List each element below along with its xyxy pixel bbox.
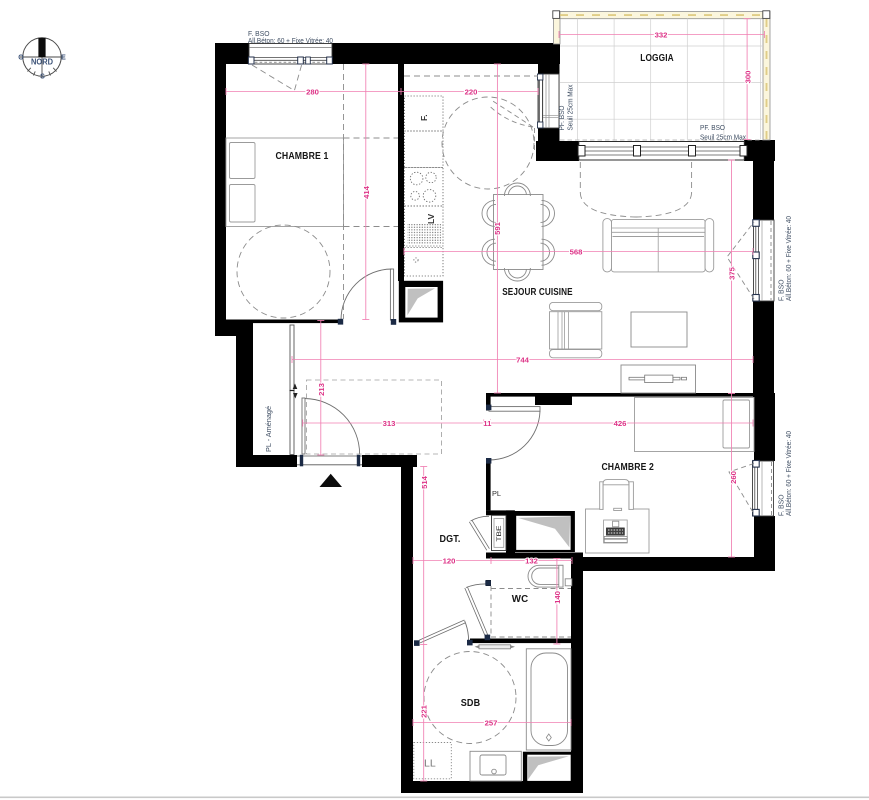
svg-text:213: 213 bbox=[317, 383, 326, 396]
svg-text:O: O bbox=[18, 55, 24, 62]
svg-text:PL - Aménagé: PL - Aménagé bbox=[264, 406, 273, 452]
svg-text:PF. BSO: PF. BSO bbox=[700, 123, 725, 132]
svg-text:Seuil 25cm Max: Seuil 25cm Max bbox=[565, 84, 574, 130]
svg-text:744: 744 bbox=[516, 356, 530, 365]
svg-text:TBE: TBE bbox=[496, 526, 503, 542]
svg-text:426: 426 bbox=[614, 419, 627, 428]
svg-text:F.: F. bbox=[419, 114, 429, 121]
svg-text:280: 280 bbox=[306, 88, 319, 97]
svg-text:WC: WC bbox=[512, 593, 529, 605]
svg-text:260: 260 bbox=[729, 471, 738, 484]
svg-text:E: E bbox=[61, 55, 66, 62]
svg-text:300: 300 bbox=[743, 71, 752, 84]
svg-text:LOGGIA: LOGGIA bbox=[640, 52, 674, 64]
svg-text:120: 120 bbox=[443, 557, 456, 566]
svg-text:568: 568 bbox=[570, 248, 584, 257]
svg-text:NORD: NORD bbox=[31, 57, 53, 67]
svg-text:All.Béton: 60 + Fixe Vitrée: 4: All.Béton: 60 + Fixe Vitrée: 40 bbox=[784, 216, 793, 301]
svg-text:All.Béton: 60 + Fixe Vitrée: 4: All.Béton: 60 + Fixe Vitrée: 40 bbox=[248, 36, 333, 45]
svg-text:257: 257 bbox=[485, 719, 498, 728]
svg-text:Seuil 25cm Max: Seuil 25cm Max bbox=[700, 133, 746, 142]
svg-text:S: S bbox=[40, 74, 45, 81]
svg-text:220: 220 bbox=[465, 88, 478, 97]
svg-text:PL: PL bbox=[492, 489, 501, 498]
svg-text:332: 332 bbox=[655, 31, 668, 40]
svg-text:313: 313 bbox=[383, 419, 396, 428]
svg-text:591: 591 bbox=[493, 221, 502, 235]
svg-text:11: 11 bbox=[483, 419, 492, 428]
svg-text:CHAMBRE 1: CHAMBRE 1 bbox=[276, 150, 329, 162]
svg-text:LV: LV bbox=[426, 213, 436, 224]
svg-text:LL: LL bbox=[424, 758, 436, 770]
svg-text:132: 132 bbox=[525, 557, 538, 566]
svg-text:All.Béton: 60 + Fixe Vitrée: 4: All.Béton: 60 + Fixe Vitrée: 40 bbox=[784, 431, 793, 516]
svg-text:140: 140 bbox=[553, 591, 562, 604]
svg-text:375: 375 bbox=[728, 266, 737, 280]
svg-text:CHAMBRE 2: CHAMBRE 2 bbox=[601, 461, 654, 473]
svg-text:SDB: SDB bbox=[461, 697, 481, 709]
svg-text:DGT.: DGT. bbox=[440, 533, 461, 545]
svg-text:SEJOUR CUISINE: SEJOUR CUISINE bbox=[502, 286, 573, 298]
svg-text:514: 514 bbox=[420, 475, 429, 489]
svg-text:221: 221 bbox=[420, 704, 429, 718]
svg-text:414: 414 bbox=[362, 185, 371, 199]
